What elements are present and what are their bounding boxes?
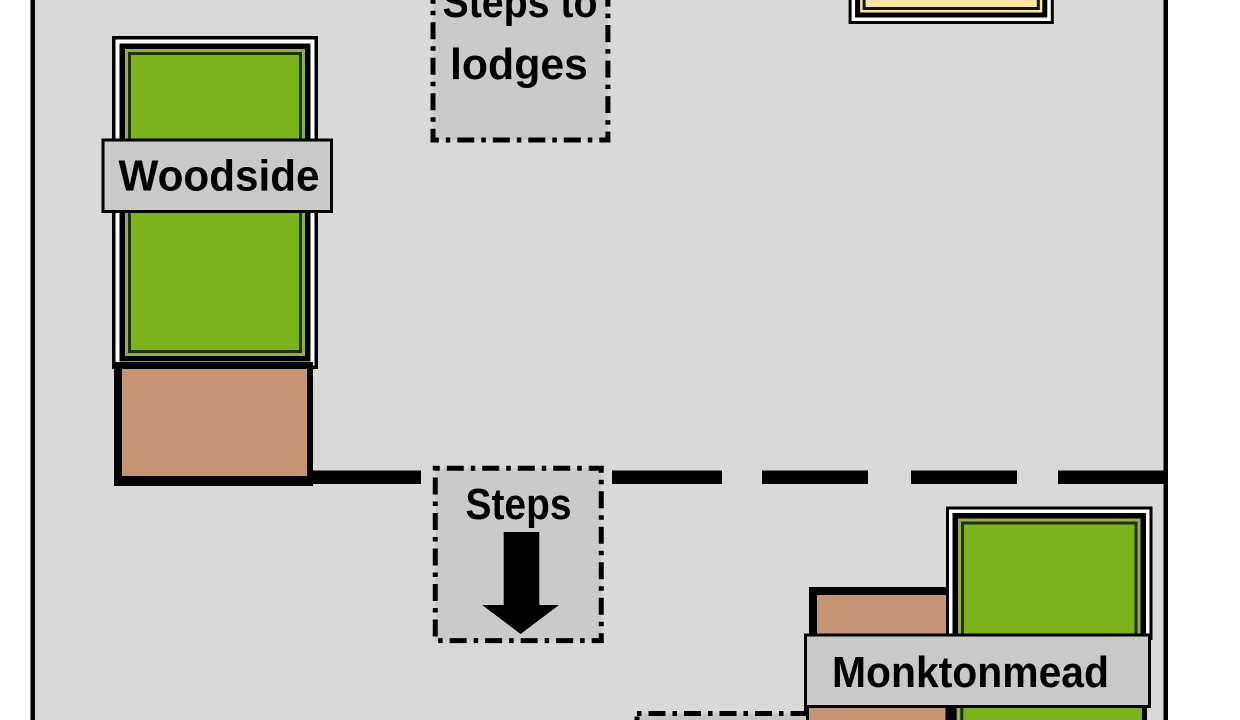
svg-text:Steps: Steps — [466, 481, 572, 529]
svg-text:Monktonmead: Monktonmead — [832, 649, 1109, 697]
svg-text:Steps to: Steps to — [443, 0, 598, 27]
svg-text:Woodside: Woodside — [119, 153, 320, 201]
svg-text:lodges: lodges — [450, 41, 588, 89]
